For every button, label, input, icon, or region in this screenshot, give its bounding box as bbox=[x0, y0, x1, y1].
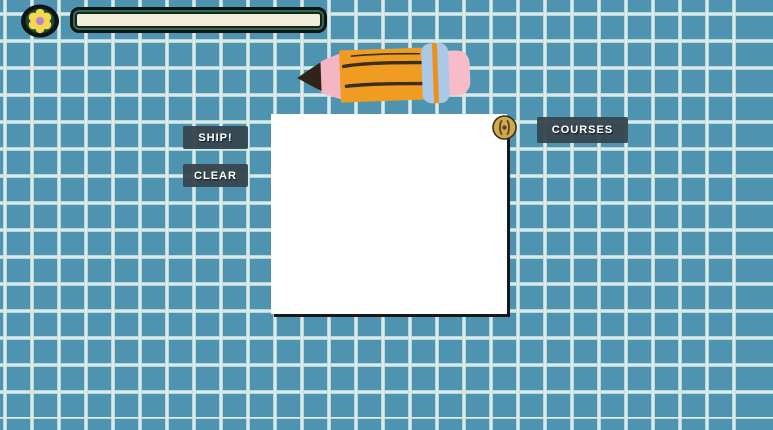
flower-icon bbox=[20, 27, 60, 42]
ship-button[interactable]: SHIP! bbox=[183, 126, 248, 149]
drawing-canvas[interactable] bbox=[271, 114, 507, 314]
courses-button[interactable]: COURSES bbox=[537, 117, 628, 143]
progress-bar bbox=[70, 7, 327, 33]
progress-bar-frame bbox=[73, 10, 324, 30]
game-stage: SHIP! CLEAR COURSES bbox=[0, 0, 773, 430]
progress-bar-track bbox=[75, 12, 322, 28]
clear-button[interactable]: CLEAR bbox=[183, 164, 248, 187]
flower-button[interactable] bbox=[20, 3, 60, 39]
pencil-icon[interactable] bbox=[293, 41, 475, 109]
pushpin-icon bbox=[491, 114, 518, 141]
